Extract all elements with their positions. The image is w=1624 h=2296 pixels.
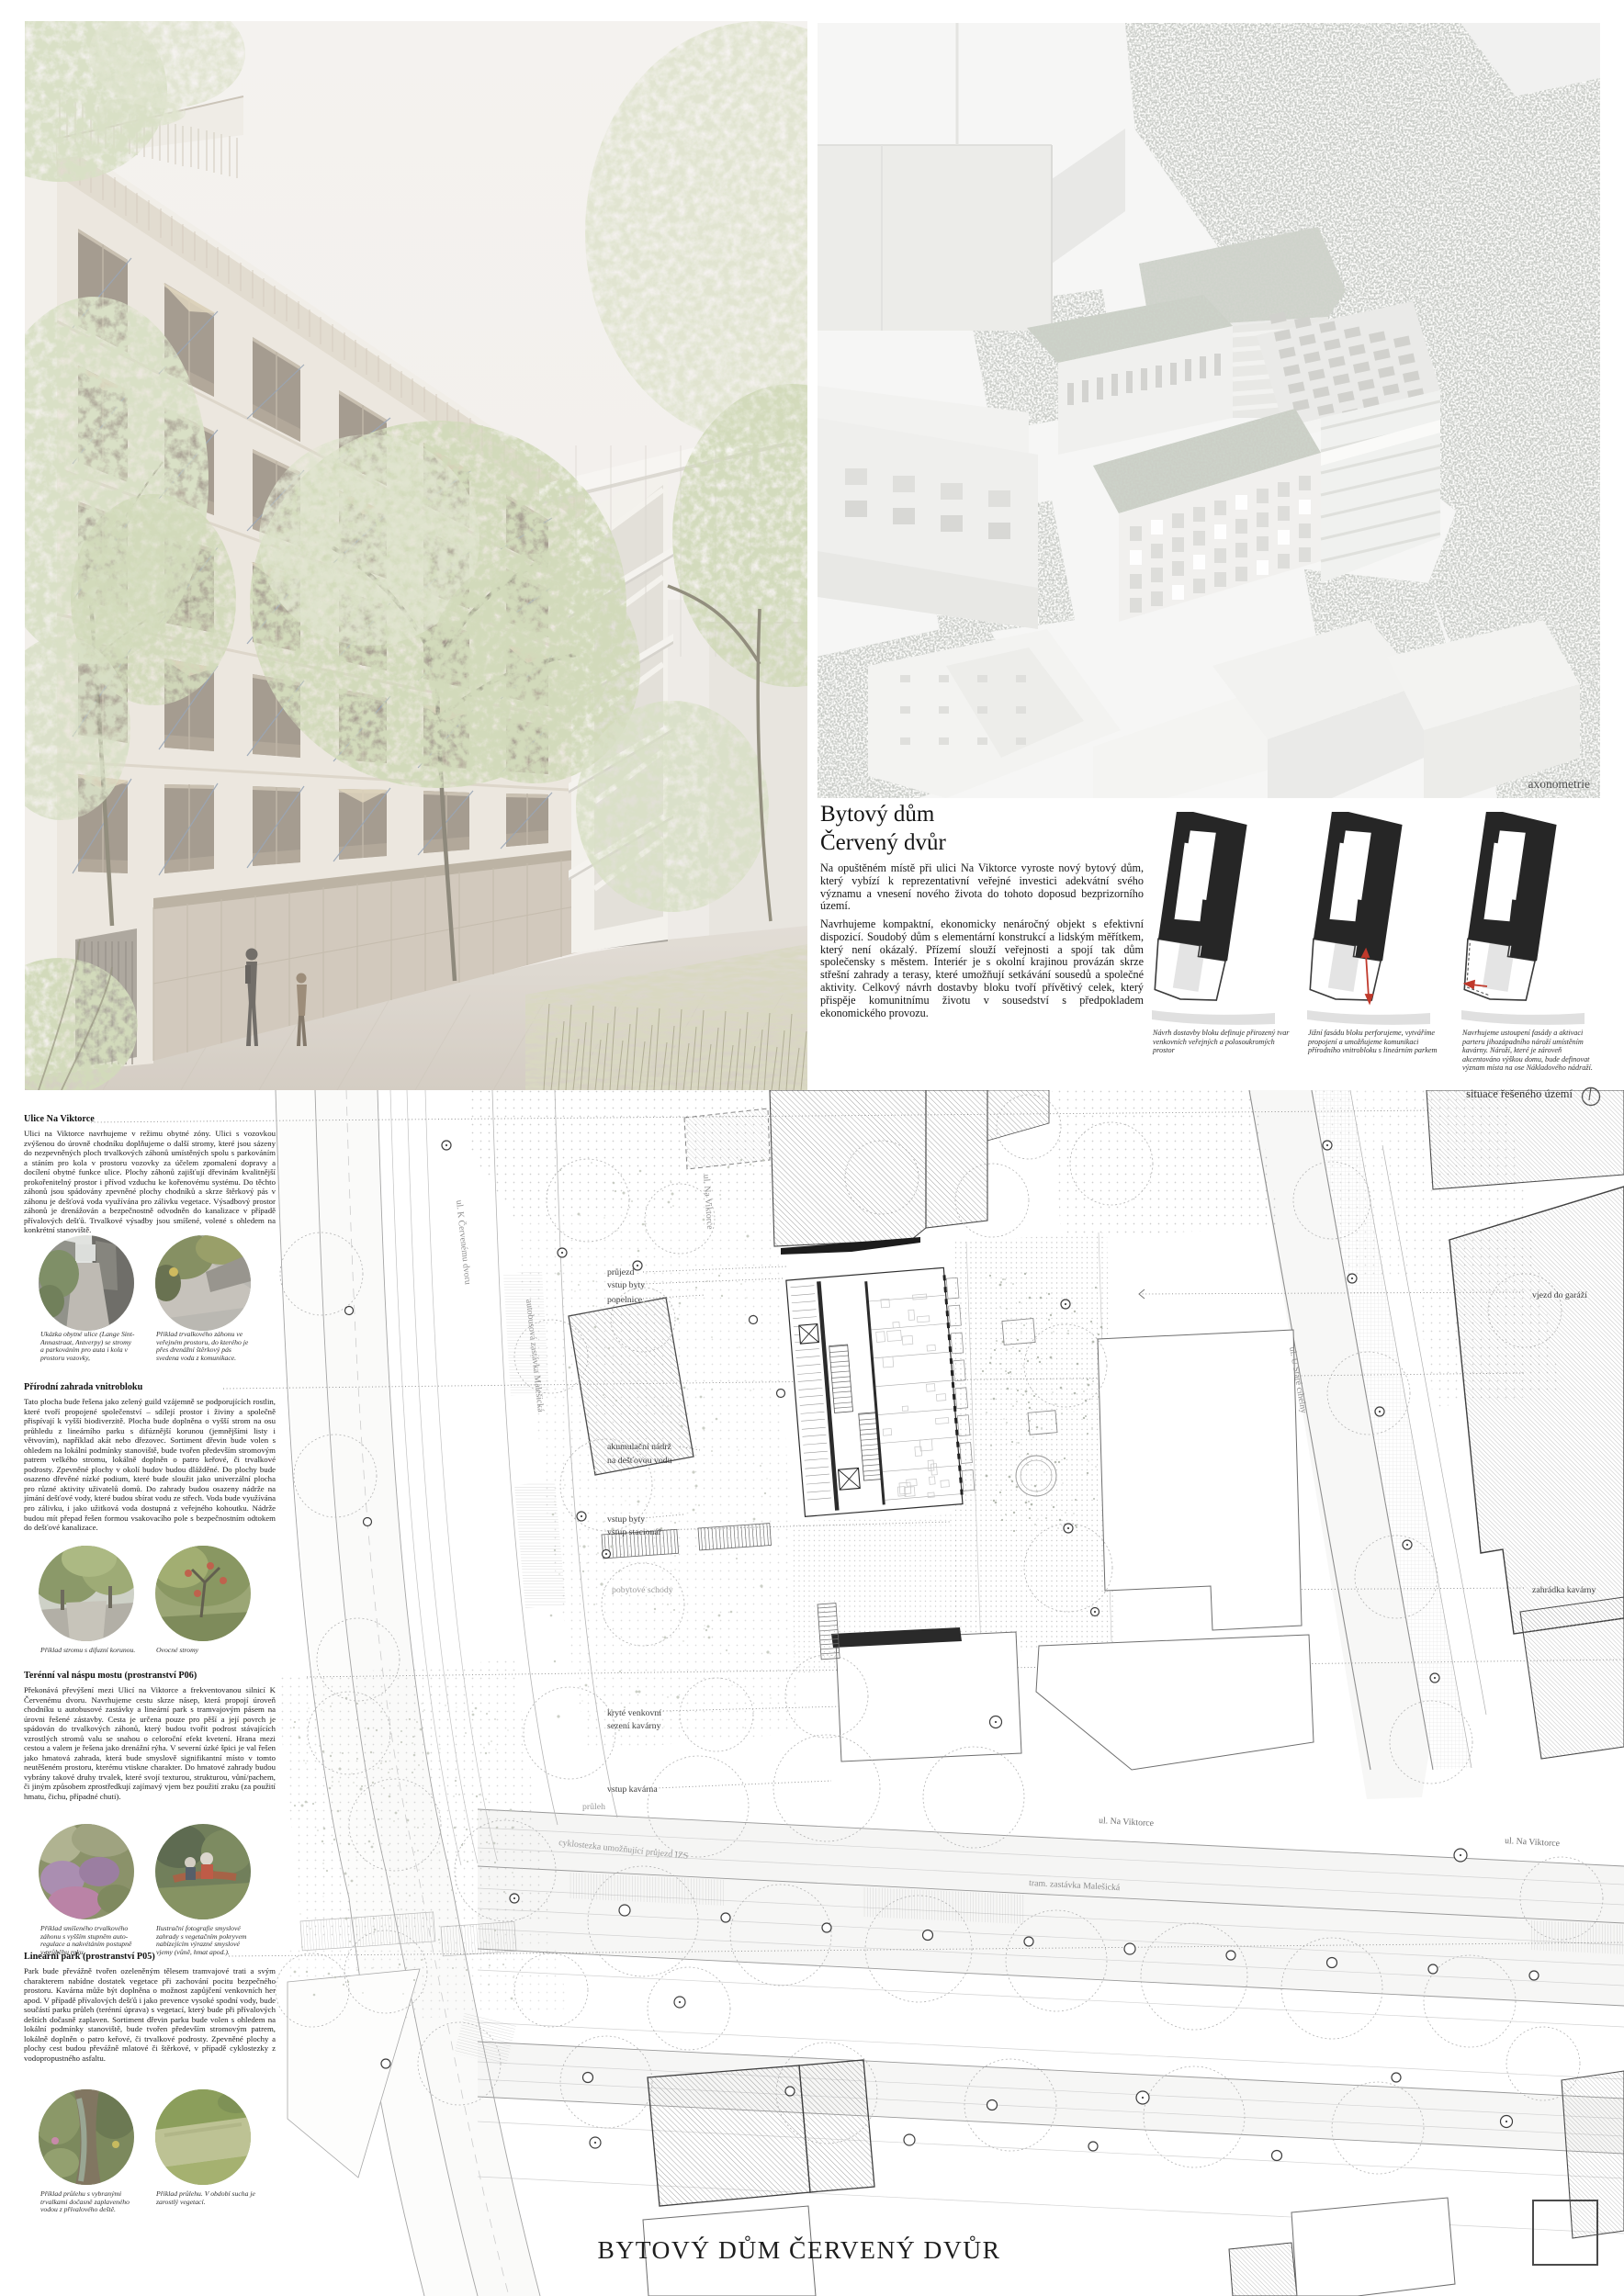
svg-text:vjezd do garáží: vjezd do garáží <box>1532 1290 1587 1300</box>
svg-text:ul. K Červenému dvoru: ul. K Červenému dvoru <box>454 1199 474 1285</box>
svg-text:vstup byty: vstup byty <box>607 1514 645 1525</box>
svg-text:ul. Na Viktorce: ul. Na Viktorce <box>1505 1836 1561 1849</box>
svg-text:průjezd: průjezd <box>607 1267 634 1277</box>
svg-text:zahrádka kavárny: zahrádka kavárny <box>1532 1585 1596 1595</box>
svg-text:pobytové schody: pobytové schody <box>612 1585 673 1595</box>
svg-text:sezení kavárny: sezení kavárny <box>607 1721 661 1731</box>
svg-text:popelnice: popelnice <box>607 1295 643 1305</box>
svg-text:vstup stacionář: vstup stacionář <box>607 1527 662 1537</box>
svg-text:akumulační nádrž: akumulační nádrž <box>607 1442 672 1452</box>
svg-text:průleh: průleh <box>582 1802 605 1812</box>
svg-text:vstup kavárna: vstup kavárna <box>607 1784 658 1795</box>
svg-text:kryté venkovní: kryté venkovní <box>607 1708 661 1718</box>
svg-text:na dešťovou vodu: na dešťovou vodu <box>607 1456 672 1466</box>
svg-text:ul. Na Viktorce: ul. Na Viktorce <box>1099 1816 1155 1829</box>
svg-text:vstup byty: vstup byty <box>607 1280 645 1290</box>
